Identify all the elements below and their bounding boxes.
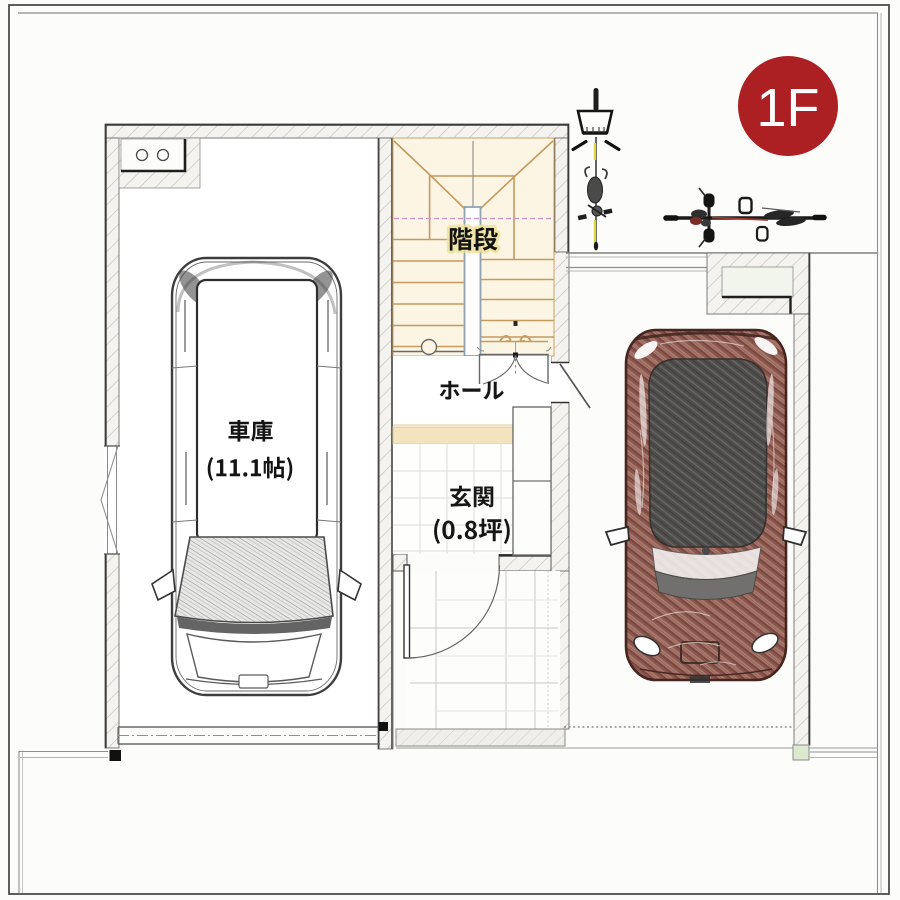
svg-text:1F: 1F bbox=[756, 78, 819, 138]
